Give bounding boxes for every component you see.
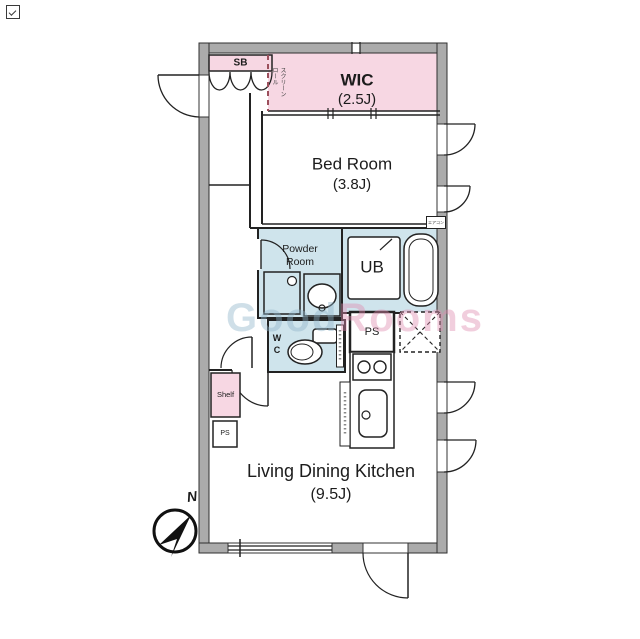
bedroom-window-icon xyxy=(444,124,475,212)
roll-screen-label: ロール スクリーン xyxy=(270,67,286,115)
kitchen-sink-icon xyxy=(359,390,387,437)
shoe-box-label: SB xyxy=(234,58,248,69)
entrance-door-icon xyxy=(158,75,199,117)
wc-label-w: W xyxy=(273,334,282,344)
kitchen-unit xyxy=(340,352,394,448)
ldk-size-label: (9.5J) xyxy=(311,486,352,504)
hall-ps-label: PS xyxy=(220,430,229,438)
fridge-strip xyxy=(340,382,350,446)
ldk-window-icon xyxy=(444,382,476,472)
wc-label-c: C xyxy=(274,346,281,356)
wic-label: WIC xyxy=(340,72,373,91)
compass-north-label: N xyxy=(186,489,198,506)
balcony-door-opening xyxy=(363,543,408,553)
air-conditioner-box: エアコン xyxy=(426,216,446,229)
compass-icon xyxy=(154,510,196,557)
stove-icon xyxy=(353,354,391,380)
floorplan-page: SB ロール スクリーン WIC (2.5J) Bed Room (3.8J) … xyxy=(0,0,640,639)
folding-door-icon xyxy=(209,72,272,90)
wic-size-label: (2.5J) xyxy=(338,92,376,109)
bedroom-label: Bed Room xyxy=(312,156,392,175)
ldk-window-opening xyxy=(228,543,332,553)
air-conditioner-label: エアコン xyxy=(428,220,444,225)
floorplan-graphic xyxy=(0,0,640,639)
powder-room-label-2: Room xyxy=(286,257,314,269)
wc-door-icon xyxy=(221,337,252,368)
powder-room-label-1: Powder xyxy=(282,244,318,256)
casement-windows xyxy=(444,124,476,472)
ldk-label: Living Dining Kitchen xyxy=(247,462,415,482)
duct-crossed-box xyxy=(400,312,440,352)
bathtub-icon xyxy=(404,234,438,306)
unit-bath-label: UB xyxy=(360,259,384,278)
pipe-space-label: PS xyxy=(365,326,380,338)
balcony-door-icon xyxy=(363,553,408,598)
entrance-opening xyxy=(199,75,209,117)
bedroom-size-label: (3.8J) xyxy=(333,177,371,194)
shelf-label: Shelf xyxy=(217,391,234,399)
